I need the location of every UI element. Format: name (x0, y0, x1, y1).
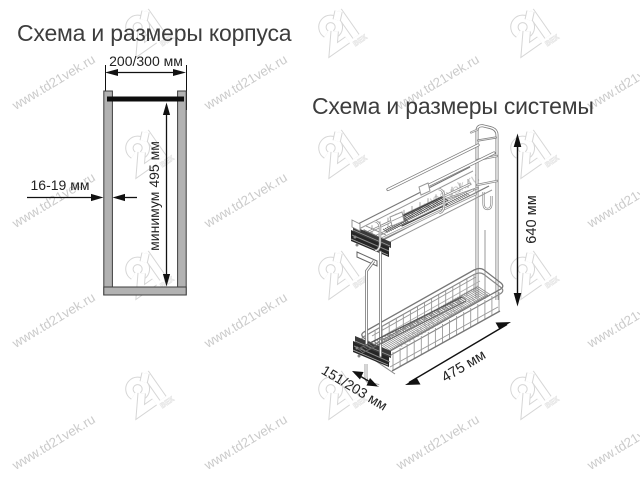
svg-text:16-19 мм: 16-19 мм (31, 177, 90, 193)
svg-text:475 мм: 475 мм (439, 347, 489, 386)
svg-text:200/300 мм: 200/300 мм (109, 53, 183, 69)
svg-text:минимум 495 мм: минимум 495 мм (146, 141, 162, 251)
svg-text:640 мм: 640 мм (524, 195, 540, 243)
svg-text:151/203 мм: 151/203 мм (319, 362, 390, 414)
